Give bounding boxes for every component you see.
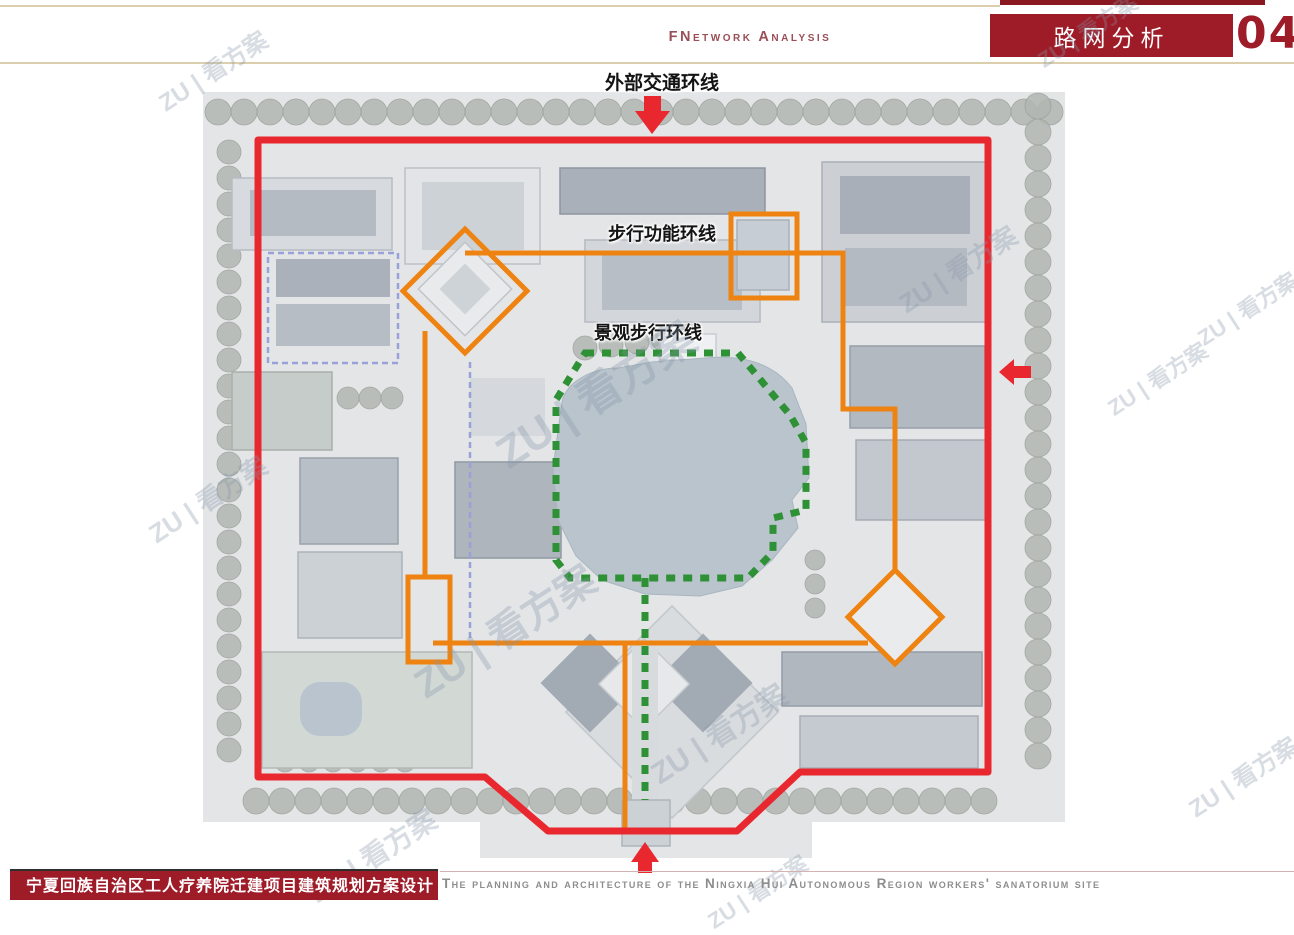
- tree: [893, 788, 919, 814]
- tree: [725, 99, 751, 125]
- tree: [217, 608, 241, 632]
- tree: [805, 598, 825, 618]
- tree: [971, 788, 997, 814]
- tree: [381, 387, 403, 409]
- building: [602, 252, 742, 310]
- tree: [1025, 535, 1051, 561]
- tree: [1025, 483, 1051, 509]
- building: [856, 440, 986, 520]
- building: [300, 458, 398, 544]
- tree: [1025, 587, 1051, 613]
- tree: [217, 634, 241, 658]
- tree: [777, 99, 803, 125]
- building: [560, 168, 765, 214]
- tree: [805, 550, 825, 570]
- tree: [1025, 717, 1051, 743]
- tree: [1025, 379, 1051, 405]
- building: [850, 346, 985, 428]
- tree: [529, 788, 555, 814]
- tree: [841, 788, 867, 814]
- building: [300, 682, 362, 736]
- tree: [425, 788, 451, 814]
- building: [782, 652, 982, 706]
- tree: [1025, 145, 1051, 171]
- tree: [337, 387, 359, 409]
- tree: [217, 348, 241, 372]
- tree: [231, 99, 257, 125]
- tree: [217, 582, 241, 606]
- tree: [855, 99, 881, 125]
- tree: [1025, 327, 1051, 353]
- tree: [217, 140, 241, 164]
- footer-divider-line: [440, 871, 1294, 872]
- building: [262, 652, 472, 768]
- tree: [581, 788, 607, 814]
- tree: [1025, 561, 1051, 587]
- tree: [933, 99, 959, 125]
- tree: [1025, 405, 1051, 431]
- tree: [399, 788, 425, 814]
- outer-ring-label: 外部交通环线: [605, 68, 719, 95]
- tree: [321, 788, 347, 814]
- tree: [217, 712, 241, 736]
- tree: [217, 504, 241, 528]
- tree: [217, 270, 241, 294]
- tree: [243, 788, 269, 814]
- tree: [359, 387, 381, 409]
- tree: [335, 99, 361, 125]
- tree: [595, 99, 621, 125]
- tree: [217, 322, 241, 346]
- tree: [1025, 457, 1051, 483]
- tree: [413, 99, 439, 125]
- tree: [711, 788, 737, 814]
- building: [470, 378, 545, 436]
- tree: [347, 788, 373, 814]
- tree: [1025, 223, 1051, 249]
- tree: [699, 99, 725, 125]
- building: [840, 176, 970, 234]
- tree: [309, 99, 335, 125]
- tree: [673, 99, 699, 125]
- tree: [1025, 639, 1051, 665]
- tree: [1025, 431, 1051, 457]
- route-pedestrian-rect: [408, 577, 450, 662]
- tree: [217, 296, 241, 320]
- tree: [217, 478, 241, 502]
- tree: [217, 556, 241, 580]
- tree: [465, 99, 491, 125]
- tree: [1025, 275, 1051, 301]
- footer-project-banner: 宁夏回族自治区工人疗养院迁建项目建筑规划方案设计: [10, 869, 438, 900]
- tree: [217, 452, 241, 476]
- tree: [919, 788, 945, 814]
- tree: [569, 99, 595, 125]
- tree: [257, 99, 283, 125]
- tree: [945, 788, 971, 814]
- tree: [1025, 509, 1051, 535]
- tree: [517, 99, 543, 125]
- site-plan-map: [0, 0, 1294, 915]
- tree: [373, 788, 399, 814]
- tree: [789, 788, 815, 814]
- tree: [829, 99, 855, 125]
- tree: [985, 99, 1011, 125]
- tree: [1025, 197, 1051, 223]
- slide-page: { "header": { "subtitle_en": "FNetwork A…: [0, 0, 1294, 915]
- building: [800, 716, 978, 768]
- tree: [387, 99, 413, 125]
- tree: [295, 788, 321, 814]
- tree: [1025, 613, 1051, 639]
- tree: [881, 99, 907, 125]
- tree: [815, 788, 841, 814]
- building: [848, 570, 941, 663]
- tree: [543, 99, 569, 125]
- building: [232, 372, 332, 450]
- building: [622, 800, 670, 846]
- tree: [1025, 249, 1051, 275]
- tree: [805, 574, 825, 594]
- tree: [751, 99, 777, 125]
- tree: [217, 738, 241, 762]
- tree: [555, 788, 581, 814]
- tree: [1025, 301, 1051, 327]
- footer-caption-en: The planning and architecture of the Nin…: [442, 876, 1292, 891]
- tree: [269, 788, 295, 814]
- tree: [205, 99, 231, 125]
- tree: [451, 788, 477, 814]
- tree: [217, 530, 241, 554]
- footer-project-title: 宁夏回族自治区工人疗养院迁建项目建筑规划方案设计: [26, 878, 434, 895]
- pedestrian-ring-label: 步行功能环线: [608, 220, 716, 246]
- building: [276, 259, 390, 297]
- tree: [1025, 93, 1051, 119]
- tree: [1025, 119, 1051, 145]
- tree: [439, 99, 465, 125]
- tree: [1025, 665, 1051, 691]
- landscape-ring-label: 景观步行环线: [594, 319, 702, 345]
- tree: [361, 99, 387, 125]
- building: [250, 190, 376, 236]
- building: [276, 304, 390, 346]
- tree: [217, 660, 241, 684]
- tree: [1025, 743, 1051, 769]
- tree: [959, 99, 985, 125]
- tree: [491, 99, 517, 125]
- tree: [283, 99, 309, 125]
- tree: [803, 99, 829, 125]
- tree: [907, 99, 933, 125]
- tree: [867, 788, 893, 814]
- tree: [1025, 691, 1051, 717]
- building: [298, 552, 402, 638]
- building: [845, 248, 967, 306]
- tree: [1025, 171, 1051, 197]
- tree: [217, 686, 241, 710]
